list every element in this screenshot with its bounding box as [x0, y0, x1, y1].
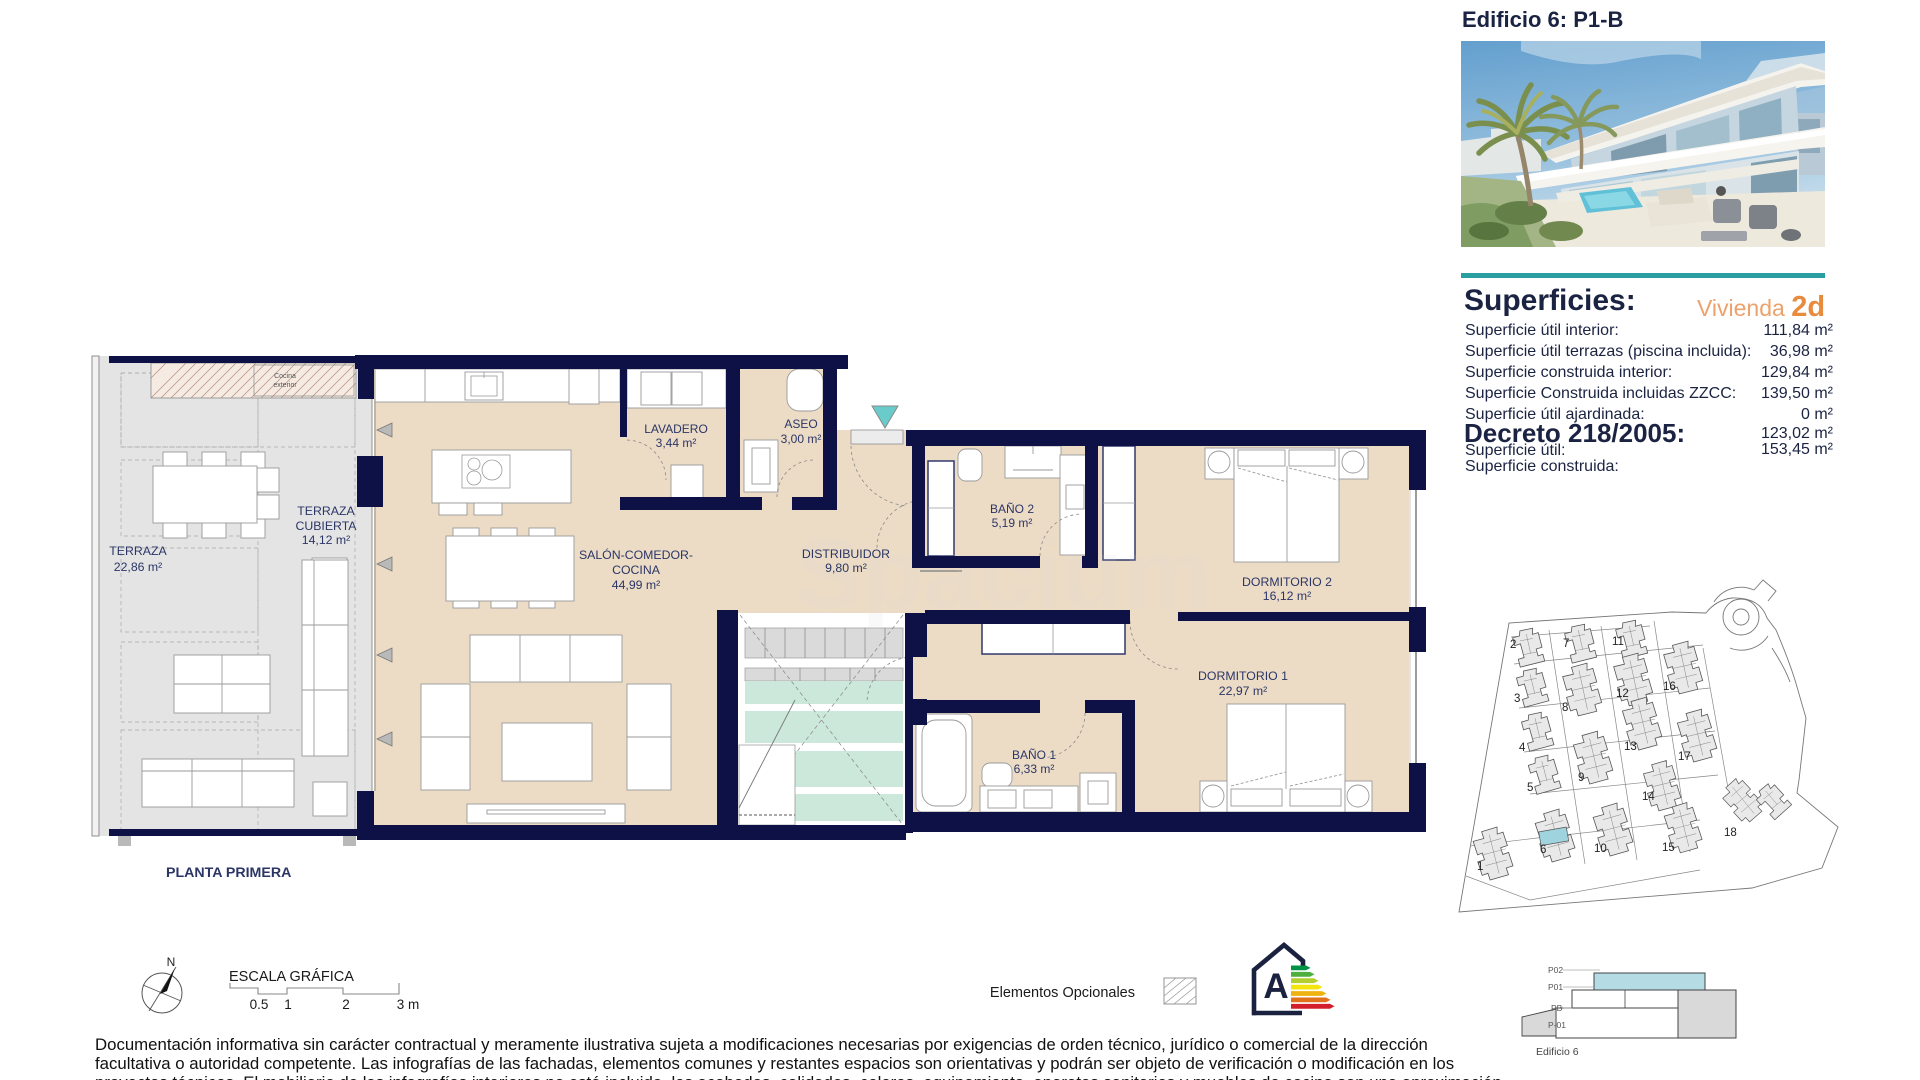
svg-text:1: 1 [284, 997, 292, 1012]
svg-text:9: 9 [1578, 772, 1584, 784]
svg-text:CUBIERTA: CUBIERTA [295, 519, 357, 533]
svg-text:3 m: 3 m [397, 997, 420, 1012]
svg-text:P-01: P-01 [1548, 1020, 1566, 1030]
svg-text:14: 14 [1642, 791, 1655, 803]
svg-text:1: 1 [1477, 861, 1483, 873]
svg-text:ASEO: ASEO [784, 417, 817, 431]
svg-text:COCINA: COCINA [612, 563, 661, 577]
svg-text:44,99 m²: 44,99 m² [612, 578, 661, 592]
svg-text:SALÓN-COMEDOR-: SALÓN-COMEDOR- [579, 547, 693, 562]
svg-text:P01: P01 [1548, 982, 1563, 992]
svg-text:3,44 m²: 3,44 m² [656, 436, 697, 450]
svg-text:16,12 m²: 16,12 m² [1263, 589, 1312, 603]
svg-text:TERRAZA: TERRAZA [297, 504, 355, 518]
svg-text:18: 18 [1724, 827, 1737, 839]
svg-text:22,97 m²: 22,97 m² [1219, 684, 1268, 698]
svg-text:6: 6 [1540, 844, 1546, 856]
svg-text:17: 17 [1678, 751, 1691, 763]
svg-text:Cocina: Cocina [274, 373, 296, 380]
svg-text:3,00 m²: 3,00 m² [781, 432, 822, 446]
svg-text:14,12 m²: 14,12 m² [302, 533, 351, 547]
svg-text:4: 4 [1519, 742, 1526, 754]
svg-text:A: A [1263, 967, 1288, 1006]
svg-text:BAÑO 1: BAÑO 1 [1012, 748, 1056, 762]
svg-text:DISTRIBUIDOR: DISTRIBUIDOR [802, 547, 890, 561]
svg-text:PLANTA PRIMERA: PLANTA PRIMERA [166, 865, 291, 881]
svg-text:8: 8 [1562, 702, 1568, 714]
svg-text:5,19 m²: 5,19 m² [992, 516, 1033, 530]
svg-text:12: 12 [1616, 688, 1629, 700]
svg-text:exterior: exterior [273, 382, 297, 389]
svg-text:3: 3 [1514, 693, 1520, 705]
svg-text:ESCALA GRÁFICA: ESCALA GRÁFICA [229, 968, 354, 985]
svg-text:2: 2 [342, 997, 350, 1012]
svg-text:7: 7 [1563, 638, 1569, 650]
svg-text:PB: PB [1551, 1003, 1563, 1013]
svg-text:Elementos Opcionales: Elementos Opcionales [990, 985, 1135, 1001]
svg-text:22,86 m²: 22,86 m² [114, 560, 163, 574]
svg-text:N: N [167, 955, 176, 969]
svg-text:TERRAZA: TERRAZA [109, 544, 167, 558]
svg-text:16: 16 [1663, 681, 1676, 693]
svg-text:15: 15 [1662, 842, 1675, 854]
svg-text:0.5: 0.5 [250, 997, 269, 1012]
svg-text:2: 2 [1510, 639, 1516, 651]
svg-text:9,80 m²: 9,80 m² [825, 561, 867, 575]
svg-text:DORMITORIO 2: DORMITORIO 2 [1242, 575, 1332, 589]
svg-text:11: 11 [1612, 636, 1624, 648]
svg-text:LAVADERO: LAVADERO [644, 422, 708, 436]
svg-text:5: 5 [1527, 782, 1533, 794]
svg-text:P02: P02 [1548, 965, 1563, 975]
svg-text:6,33 m²: 6,33 m² [1014, 762, 1055, 776]
svg-text:13: 13 [1624, 741, 1637, 753]
svg-text:DORMITORIO 1: DORMITORIO 1 [1198, 669, 1288, 683]
svg-text:10: 10 [1594, 843, 1607, 855]
svg-text:BAÑO 2: BAÑO 2 [990, 502, 1034, 516]
